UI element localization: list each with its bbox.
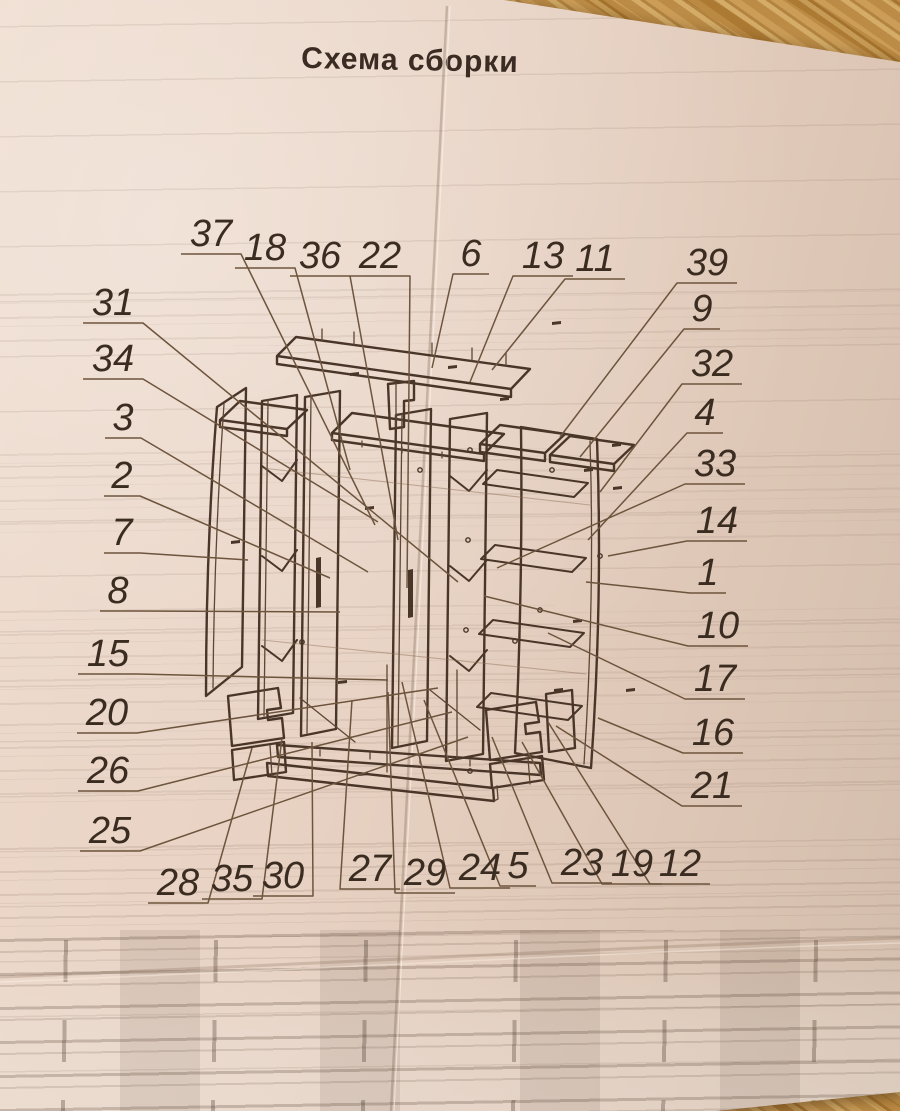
assembly-diagram: 3718362261311399324331411017162131343278… (0, 0, 900, 1111)
middle-shelf-panel (332, 413, 504, 461)
part-number-7: 7 (111, 512, 134, 554)
part-number-33: 33 (694, 443, 736, 485)
vertical-fold-line (391, 6, 447, 1111)
vertical-panels (206, 388, 599, 768)
part-number-15: 15 (87, 633, 130, 675)
vertical-fold-highlight (394, 6, 450, 1111)
cabinet-drawing (206, 321, 635, 801)
leader-line-37 (181, 254, 375, 525)
part-number-37: 37 (190, 213, 234, 255)
part-number-32: 32 (691, 343, 733, 385)
paper-folds (0, 6, 900, 1111)
part-number-8: 8 (107, 570, 128, 612)
part-number-18: 18 (244, 227, 286, 269)
cornice-top-panel (277, 337, 530, 397)
leader-line-14 (608, 541, 747, 556)
paper-sheet: Схема сборки (0, 0, 900, 1111)
part-number-25: 25 (88, 810, 132, 852)
part-number-21: 21 (690, 765, 733, 807)
part-number-3: 3 (112, 397, 133, 439)
part-number-20: 20 (85, 692, 128, 734)
part-number-10: 10 (697, 605, 739, 647)
leader-line-11 (492, 279, 625, 370)
leader-line-6 (432, 274, 489, 368)
panel-inner-edges (213, 383, 592, 801)
part-number-36: 36 (299, 235, 342, 277)
part-number-6: 6 (460, 233, 482, 275)
part-number-5: 5 (507, 845, 529, 887)
part-number-19: 19 (611, 843, 653, 885)
screw-marks (300, 448, 602, 773)
leader-line-36 (290, 276, 398, 540)
part-number-1: 1 (697, 552, 718, 594)
part-number-9: 9 (691, 288, 712, 330)
leader-line-3 (105, 438, 368, 572)
leader-line-26 (78, 712, 452, 791)
part-number-12: 12 (659, 843, 701, 885)
shelf-slats (477, 470, 588, 720)
part-number-29: 29 (403, 852, 446, 894)
part-number-17: 17 (694, 658, 738, 700)
photo-scene: Схема сборки (0, 0, 900, 1111)
paper-shadow-wrap: Схема сборки (0, 0, 900, 1111)
leader-line-7 (104, 553, 248, 560)
part-number-2: 2 (110, 455, 132, 497)
part-number-39: 39 (686, 242, 728, 284)
part-number-30: 30 (262, 855, 304, 897)
part-number-28: 28 (156, 862, 199, 904)
horizontal-crease-highlight (0, 943, 900, 982)
part-number-16: 16 (692, 712, 735, 754)
fitting-dash-marks (231, 321, 635, 776)
part-number-22: 22 (358, 235, 401, 277)
part-number-23: 23 (560, 842, 603, 884)
door-handles (316, 557, 413, 618)
leader-line-8 (100, 611, 340, 612)
part-number-13: 13 (522, 235, 564, 277)
part-number-14: 14 (696, 500, 738, 542)
part-number-31: 31 (92, 282, 134, 324)
part-number-34: 34 (92, 338, 134, 380)
part-numbers: 3718362261311399324331411017162131343278… (85, 213, 739, 904)
part-number-26: 26 (86, 750, 130, 792)
leader-line-13 (470, 276, 573, 382)
horizontal-crease-line (0, 938, 900, 977)
part-number-11: 11 (575, 238, 614, 280)
part-number-24: 24 (458, 847, 501, 889)
part-number-35: 35 (211, 858, 254, 900)
part-number-27: 27 (348, 848, 393, 890)
part-number-4: 4 (694, 392, 715, 434)
